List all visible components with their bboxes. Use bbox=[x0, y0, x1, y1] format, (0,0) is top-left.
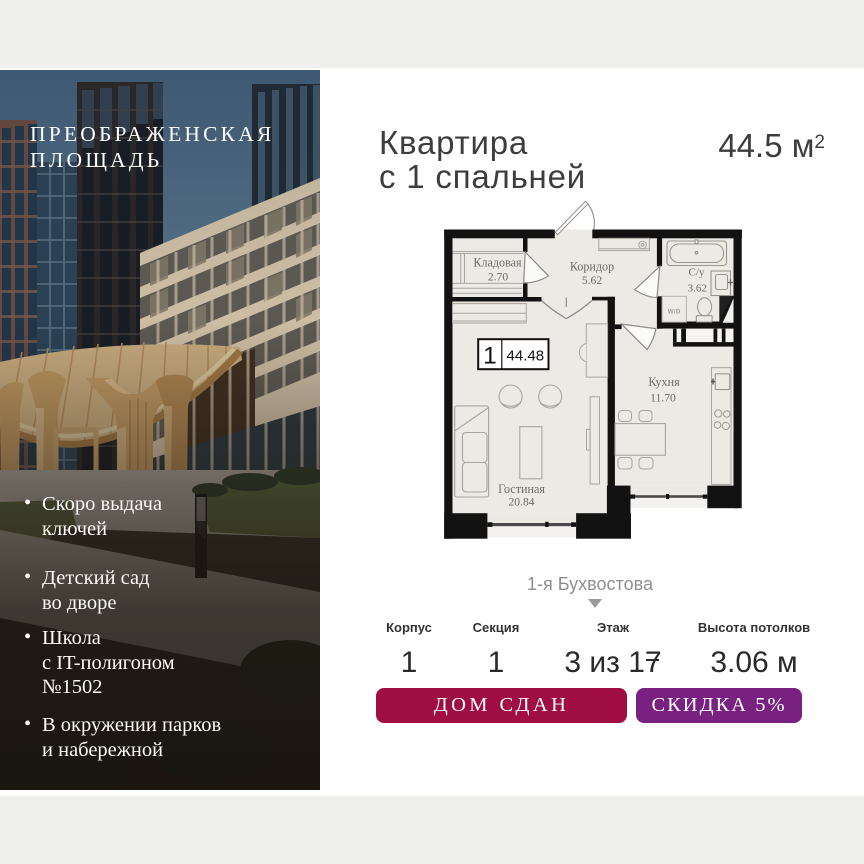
svg-text:Коридор: Коридор bbox=[570, 260, 614, 274]
svg-text:Кухня: Кухня bbox=[648, 375, 680, 389]
svg-text:1: 1 bbox=[483, 343, 497, 370]
svg-text:20.84: 20.84 bbox=[508, 496, 534, 509]
svg-text:2.70: 2.70 bbox=[488, 271, 508, 284]
svg-text:С/у: С/у bbox=[689, 267, 705, 279]
svg-text:5.62: 5.62 bbox=[582, 274, 602, 287]
svg-text:11.70: 11.70 bbox=[650, 392, 676, 405]
svg-text:Гостиная: Гостиная bbox=[498, 482, 545, 496]
svg-text:44.48: 44.48 bbox=[507, 348, 545, 365]
svg-text:3.62: 3.62 bbox=[688, 283, 707, 295]
svg-text:W/D: W/D bbox=[668, 309, 681, 316]
svg-text:Кладовая: Кладовая bbox=[473, 256, 522, 270]
